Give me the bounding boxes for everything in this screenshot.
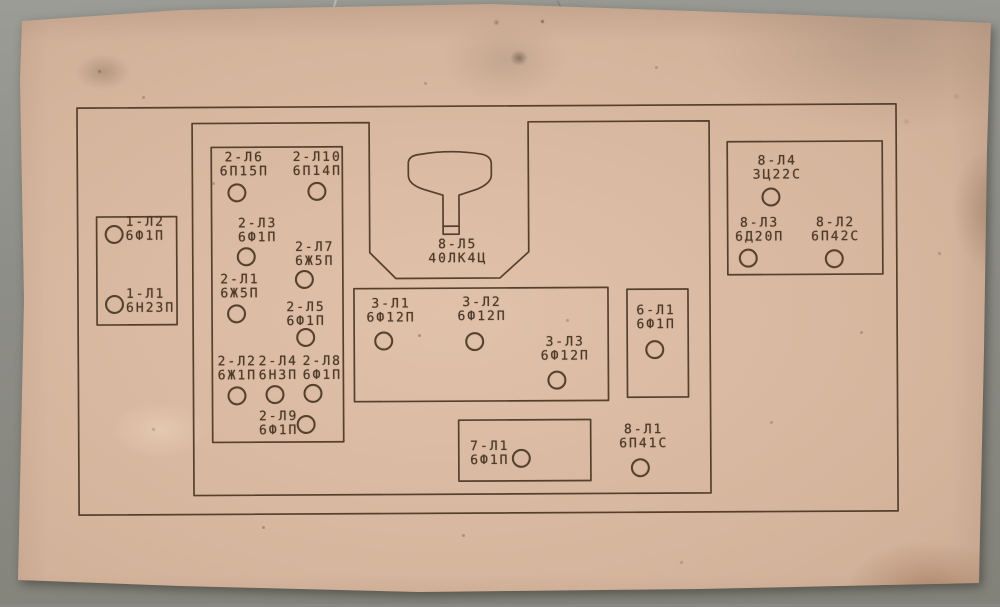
tube-label: 2-Л4 6Н3П bbox=[259, 355, 298, 382]
tube-3-l1: 3-Л1 6Ф12П bbox=[0, 0, 998, 3]
tube-designation: 1-Л2 bbox=[126, 216, 165, 230]
tube-socket-hole bbox=[761, 187, 780, 206]
tube-label: 8-Л2 6П42С bbox=[811, 216, 860, 243]
tube-2-l2: 2-Л2 6Ж1П bbox=[0, 0, 998, 3]
tube-type: 6Н3П bbox=[259, 369, 298, 383]
tube-2-l5: 2-Л5 6Ф1П bbox=[0, 0, 998, 3]
tube-8-l4: 8-Л4 3Ц22С bbox=[0, 0, 998, 3]
diagram-paper-sheet: 8-Л5 40ЛК4Ц 1-Л2 6Ф1П 1-Л1 6Н23П bbox=[0, 0, 1000, 604]
tube-socket-hole bbox=[227, 183, 246, 202]
tube-designation: 8-Л3 bbox=[735, 216, 784, 230]
tube-socket-hole bbox=[307, 182, 326, 201]
tube-type: 6Н23П bbox=[126, 301, 175, 315]
tube-label: 2-Л9 6Ф1П bbox=[259, 410, 298, 437]
tube-label: 1-Л2 6Ф1П bbox=[126, 216, 165, 243]
tube-label: 2-Л10 6П14П bbox=[293, 151, 342, 178]
tube-type: 6Ф12П bbox=[457, 309, 506, 323]
tube-type: 6Ф1П bbox=[126, 229, 165, 243]
tube-8-l2: 8-Л2 6П42С bbox=[0, 0, 998, 3]
tube-8-l3: 8-Л3 6Д20П bbox=[0, 0, 998, 3]
tube-type: 40ЛК4Ц bbox=[428, 252, 487, 266]
tube-designation: 2-Л4 bbox=[259, 355, 298, 369]
tube-socket-hole bbox=[374, 332, 393, 351]
tube-designation: 2-Л2 bbox=[218, 355, 257, 369]
tube-designation: 2-Л7 bbox=[295, 241, 334, 255]
tube-designation: 6-Л1 bbox=[636, 304, 675, 318]
tube-2-l9: 2-Л9 6Ф1П bbox=[0, 0, 998, 3]
tube-designation: 1-Л1 bbox=[126, 288, 175, 302]
tube-type: 3Ц22С bbox=[753, 168, 802, 182]
tube-designation: 8-Л4 bbox=[753, 154, 802, 168]
tube-socket-hole bbox=[303, 384, 322, 403]
tube-socket-hole bbox=[465, 332, 484, 351]
paper-speckles bbox=[0, 0, 3, 3]
tube-2-l8: 2-Л8 6Ф1П bbox=[0, 0, 998, 3]
tube-8-l1: 8-Л1 6П41С bbox=[0, 0, 998, 3]
tube-label: 3-Л1 6Ф12П bbox=[366, 297, 415, 324]
tube-label: 2-Л7 6Ж5П bbox=[295, 241, 334, 268]
tube-label: 2-Л3 6Ф1П bbox=[238, 217, 277, 244]
tube-label: 7-Л1 6Ф1П bbox=[470, 440, 509, 467]
tube-socket-hole bbox=[237, 247, 256, 266]
tube-3-l2: 3-Л2 6Ф12П bbox=[0, 0, 998, 3]
tube-designation: 2-Л10 bbox=[293, 151, 342, 165]
tube-designation: 2-Л5 bbox=[286, 301, 325, 315]
tube-label: 2-Л5 6Ф1П bbox=[286, 301, 325, 328]
tube-type: 6Ф1П bbox=[303, 368, 342, 382]
tube-socket-hole bbox=[739, 249, 758, 268]
tube-type: 6Ф12П bbox=[366, 311, 415, 325]
tube-1-l2: 1-Л2 6Ф1П bbox=[0, 0, 998, 3]
tube-socket-hole bbox=[265, 385, 284, 404]
tube-label: 3-Л3 6Ф12П bbox=[541, 335, 590, 362]
tube-type: 6П41С bbox=[619, 437, 668, 451]
tube-2-l7: 2-Л7 6Ж5П bbox=[0, 0, 998, 3]
tube-type: 6Ф1П bbox=[238, 231, 277, 245]
crt-picture-tube-outline bbox=[408, 151, 491, 234]
tube-socket-hole bbox=[512, 449, 531, 468]
tube-type: 6Ф1П bbox=[470, 453, 509, 467]
tube-designation: 3-Л3 bbox=[541, 335, 590, 349]
tube-type: 6П14П bbox=[293, 164, 342, 178]
tube-label: 8-Л1 6П41С bbox=[619, 423, 668, 450]
tube-socket-hole bbox=[825, 249, 844, 268]
tube-designation: 8-Л5 bbox=[428, 238, 487, 252]
tube-type: 6Д20П bbox=[735, 230, 784, 244]
tube-type: 6Ж1П bbox=[218, 369, 257, 383]
tube-type: 6Ф12П bbox=[541, 349, 590, 363]
tube-socket-hole bbox=[227, 386, 246, 405]
tube-7-l1: 7-Л1 6Ф1П bbox=[0, 0, 998, 3]
tube-2-l3: 2-Л3 6Ф1П bbox=[0, 0, 998, 3]
tube-label: 1-Л1 6Н23П bbox=[126, 288, 175, 315]
tube-designation: 2-Л6 bbox=[220, 151, 269, 165]
tube-type: 6Ж5П bbox=[295, 254, 334, 268]
tube-label: 2-Л1 6Ж5П bbox=[220, 273, 259, 300]
tube-designation: 3-Л2 bbox=[457, 296, 506, 310]
tube-label: 6-Л1 6Ф1П bbox=[636, 304, 675, 331]
tube-socket-hole bbox=[547, 371, 566, 390]
tube-2-l4: 2-Л4 6Н3П bbox=[0, 0, 998, 3]
tube-label: 3-Л2 6Ф12П bbox=[457, 296, 506, 323]
tube-label: 2-Л8 6Ф1П bbox=[303, 355, 342, 382]
tube-6-l1: 6-Л1 6Ф1П bbox=[0, 0, 998, 3]
tube-socket-hole bbox=[297, 415, 316, 434]
tube-designation: 2-Л8 bbox=[303, 355, 342, 369]
tube-designation: 3-Л1 bbox=[366, 297, 415, 311]
tube-designation: 7-Л1 bbox=[470, 440, 509, 454]
tube-socket-hole bbox=[631, 458, 650, 477]
tube-layout-diagram: 8-Л5 40ЛК4Ц 1-Л2 6Ф1П 1-Л1 6Н23П bbox=[0, 0, 1000, 607]
tube-socket-hole bbox=[105, 295, 124, 314]
tube-2-l6: 2-Л6 6П15П bbox=[0, 0, 998, 3]
paper-shadow: 8-Л5 40ЛК4Ц 1-Л2 6Ф1П 1-Л1 6Н23П bbox=[0, 0, 1000, 604]
tube-3-l3: 3-Л3 6Ф12П bbox=[0, 0, 998, 3]
tube-designation: 8-Л1 bbox=[619, 423, 668, 437]
tube-label: 8-Л4 3Ц22С bbox=[753, 154, 802, 181]
tube-label: 2-Л2 6Ж1П bbox=[218, 355, 257, 382]
tube-designation: 2-Л9 bbox=[259, 410, 298, 424]
tube-designation: 2-Л3 bbox=[238, 217, 277, 231]
tube-type: 6Ж5П bbox=[220, 287, 259, 301]
tube-socket-hole bbox=[296, 328, 315, 347]
tube-designation: 8-Л2 bbox=[811, 216, 860, 230]
tube-socket-hole bbox=[227, 304, 246, 323]
tube-type: 6П42С bbox=[811, 230, 860, 244]
crt-label: 8-Л5 40ЛК4Ц bbox=[428, 238, 487, 265]
tube-socket-hole bbox=[295, 270, 314, 289]
tube-label: 2-Л6 6П15П bbox=[220, 151, 269, 178]
tube-socket-hole bbox=[645, 340, 664, 359]
tube-type: 6Ф1П bbox=[286, 314, 325, 328]
photo-background: 8-Л5 40ЛК4Ц 1-Л2 6Ф1П 1-Л1 6Н23П bbox=[0, 0, 1000, 604]
tube-2-l1: 2-Л1 6Ж5П bbox=[0, 0, 998, 3]
tube-type: 6П15П bbox=[220, 165, 269, 179]
tube-1-l1: 1-Л1 6Н23П bbox=[0, 0, 998, 3]
tube-socket-hole bbox=[105, 225, 124, 244]
tube-designation: 2-Л1 bbox=[220, 273, 259, 287]
tube-label: 8-Л3 6Д20П bbox=[735, 216, 784, 243]
tube-type: 6Ф1П bbox=[259, 424, 298, 438]
tube-2-l10: 2-Л10 6П14П bbox=[0, 0, 998, 3]
tube-type: 6Ф1П bbox=[636, 318, 675, 332]
